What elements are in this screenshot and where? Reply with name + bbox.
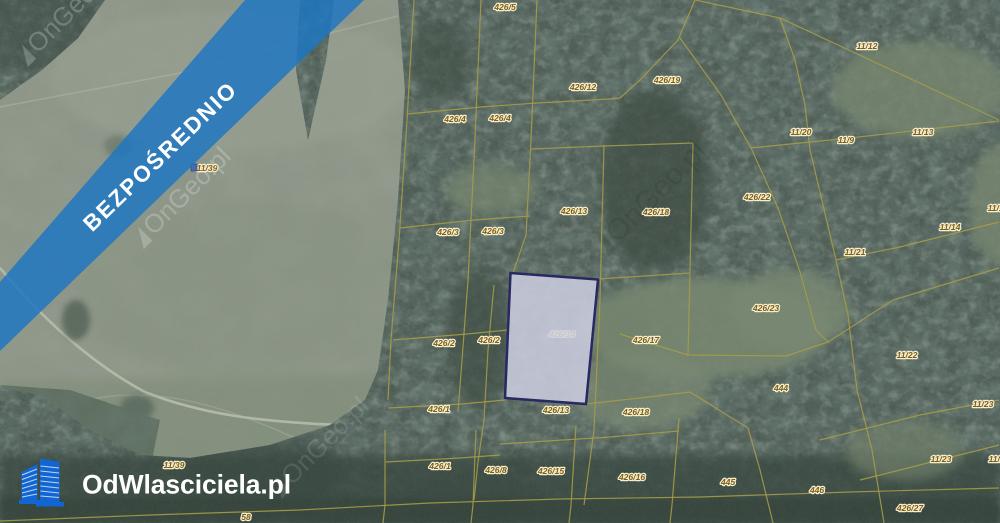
svg-text:OdWlasciciela.pl: OdWlasciciela.pl [82,470,291,500]
